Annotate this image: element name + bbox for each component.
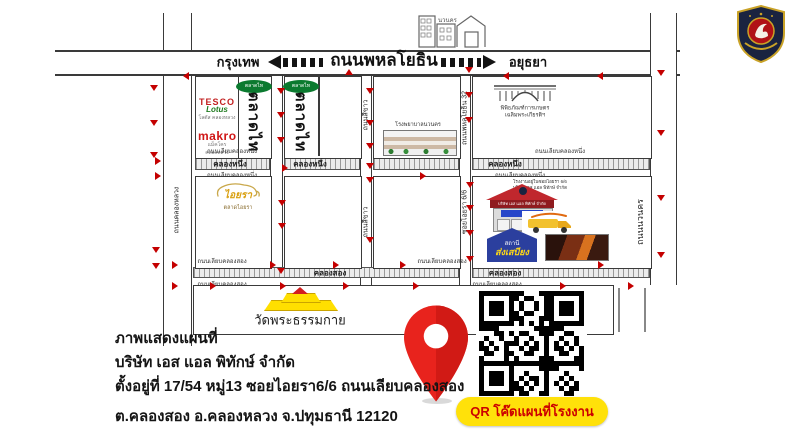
city-label-bangkok: กรุงเทพ (217, 52, 260, 73)
map-floating-label: ถนนเลียบคลองสอง (197, 256, 246, 266)
map-floating-label: คลองหนึ่ง (213, 157, 247, 170)
left-direction-arrow-icon (268, 55, 281, 69)
map-floating-label: ถนนเลียบคลองหนึ่ง (207, 146, 257, 156)
address-company: บริษัท เอส แอล พิทักษ์ จำกัด (115, 350, 295, 374)
qr-code (476, 288, 587, 399)
right-vertical-road (650, 13, 677, 285)
tesco-lotus-logo: TESCO Lotus โลตัส คลองหลวง (198, 98, 236, 122)
factory-door (497, 219, 510, 231)
nava-nakorn-label: นวนคร (438, 15, 457, 25)
map-floating-label: ถนนเลียบคลองสอง (472, 279, 521, 289)
company-logo-shield (735, 5, 787, 63)
hospital-trees (386, 149, 452, 154)
red-direction-arrow-icon (150, 85, 158, 91)
talad-thai-vertical-label-2: ตลาดไท (289, 92, 313, 153)
red-direction-arrow-icon (466, 205, 474, 211)
red-direction-arrow-icon (155, 172, 161, 180)
red-direction-arrow-icon (172, 282, 178, 290)
map-floating-label: ถนนเลียบคลองหนึ่ง (495, 170, 545, 180)
red-direction-arrow-icon (280, 282, 286, 290)
red-direction-arrow-icon (282, 164, 288, 172)
red-direction-arrow-icon (277, 137, 285, 143)
red-direction-arrow-icon (628, 282, 634, 290)
map-floating-label: คลองหนึ่ง (293, 157, 327, 170)
road-label-soi-aiyara: ซอยไอยรา 6/6 (460, 190, 471, 234)
hospital-image (383, 130, 457, 156)
red-direction-arrow-icon (465, 67, 473, 73)
address-street: ตั้งอยู่ที่ 17/54 หมู่13 ซอยไอยรา6/6 ถนน… (115, 374, 464, 398)
red-direction-arrow-icon (333, 261, 339, 269)
right-direction-arrow-icon (483, 55, 496, 69)
red-direction-arrow-icon (172, 261, 178, 269)
city-label-ayutthaya: อยุธยา (509, 52, 547, 73)
top-left-vertical-road (163, 13, 192, 50)
red-direction-arrow-icon (343, 282, 349, 290)
red-direction-arrow-icon (400, 261, 406, 269)
red-direction-arrow-icon (277, 268, 285, 274)
map-page: กรุงเทพ ถนนพหลโยธิน อยุธยา ถนนคลองหลวง ถ… (0, 0, 800, 446)
nava-nakorn-buildings: นวนคร (418, 12, 490, 48)
red-direction-arrow-icon (503, 72, 509, 80)
red-direction-arrow-icon (657, 252, 665, 258)
map-floating-label: คลองหนึ่ง (488, 157, 522, 170)
factory-sign-band: บริษัท เอส แอล พิทักษ์ จำกัด (490, 200, 554, 208)
red-direction-arrow-icon (155, 157, 161, 165)
red-direction-arrow-icon (278, 223, 286, 229)
red-direction-arrow-icon (366, 177, 374, 183)
aiyara-logo-text: ไอยรา (224, 191, 252, 201)
road-label-si-khao-lower: ถนนสีขาว (361, 207, 372, 238)
map-floating-label: ถนนเลียบคลองหนึ่ง (535, 146, 585, 156)
map-floating-label: คลองสอง (314, 266, 347, 279)
map-floating-label: คลองสอง (489, 266, 522, 279)
red-direction-arrow-icon (465, 92, 473, 98)
red-direction-arrow-icon (366, 120, 374, 126)
red-direction-arrow-icon (345, 69, 353, 75)
address-title: ภาพแสดงแผนที่ (115, 326, 218, 350)
red-direction-arrow-icon (277, 112, 285, 118)
talad-thai-vertical-label-1: ตลาดไท (242, 92, 266, 153)
food-banner-image (545, 234, 609, 261)
right-road-stub-line-1 (618, 288, 620, 332)
delivery-truck-image (522, 211, 578, 234)
red-direction-arrow-icon (152, 263, 160, 269)
red-direction-arrow-icon (420, 172, 426, 180)
qr-label-pill: QR โค๊ดแผนที่โรงงาน (456, 397, 608, 426)
red-direction-arrow-icon (466, 182, 474, 188)
red-direction-arrow-icon (560, 282, 566, 290)
red-direction-arrow-icon (183, 72, 189, 80)
left-arrow-dashes-icon (283, 58, 323, 67)
red-direction-arrow-icon (657, 70, 665, 76)
museum-label: พิพิธภัณฑ์การเกษตร เฉลิมพระเกียรติฯ (501, 106, 550, 119)
museum-bridge-icon (492, 82, 558, 102)
red-direction-arrow-icon (413, 282, 419, 290)
road-label-khlong-luang: ถนนคลองหลวง (172, 187, 183, 234)
hospital-label: โรงพยาบาลนวนคร (395, 121, 441, 129)
empty-block-1 (284, 176, 362, 269)
red-direction-arrow-icon (466, 230, 474, 236)
temple-icon-mid (281, 293, 321, 303)
red-direction-arrow-icon (466, 256, 474, 262)
temple-label: วัดพระธรรมกาย (254, 310, 346, 331)
map-floating-label: ถนนเลียบคลองสอง (417, 256, 466, 266)
red-direction-arrow-icon (597, 72, 603, 80)
aiyara-sub-label: ตลาดไอยรา (224, 204, 253, 212)
road-label-right-road: ถนนนวนคร (633, 199, 647, 245)
red-direction-arrow-icon (366, 88, 374, 94)
red-direction-arrow-icon (152, 247, 160, 253)
qr-label: QR โค๊ดแผนที่โรงงาน (470, 401, 594, 422)
red-direction-arrow-icon (270, 261, 276, 269)
block-divider (318, 77, 320, 156)
map-floating-label: ถนนเลียบคลองสอง (197, 279, 246, 289)
right-arrow-dashes-icon (441, 58, 481, 67)
red-direction-arrow-icon (465, 117, 473, 123)
red-direction-arrow-icon (366, 143, 374, 149)
right-road-stub-line-2 (644, 288, 646, 332)
red-direction-arrow-icon (598, 261, 604, 269)
red-direction-arrow-icon (366, 163, 374, 169)
red-direction-arrow-icon (210, 282, 216, 290)
red-direction-arrow-icon (277, 88, 285, 94)
address-city: ต.คลองสอง อ.คลองหลวง จ.ปทุมธานี 12120 (115, 404, 398, 428)
red-direction-arrow-icon (366, 237, 374, 243)
red-direction-arrow-icon (278, 200, 286, 206)
map-floating-label: ถนนเลียบคลองหนึ่ง (207, 170, 257, 180)
red-direction-arrow-icon (657, 130, 665, 136)
factory-roof-logo (518, 186, 528, 196)
red-direction-arrow-icon (657, 195, 665, 201)
red-direction-arrow-icon (150, 120, 158, 126)
